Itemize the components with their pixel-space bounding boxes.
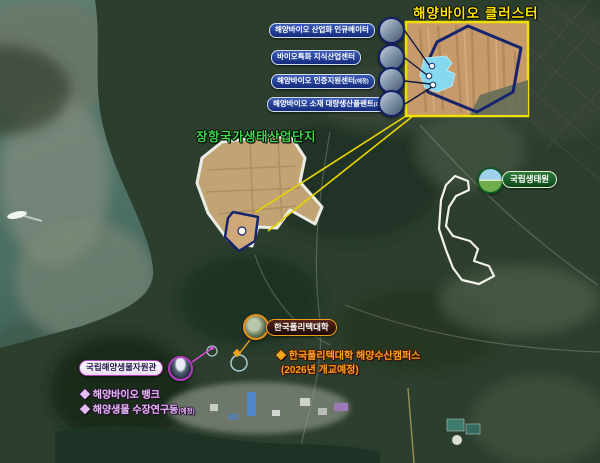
facility-label: 해양바이오 인증지원센터 [277, 76, 355, 85]
facility-pill-gmp-plant: 해양바이오 소재 대량생산플랜트(GMP) [267, 97, 396, 112]
satellite-map: 해양바이오 클러스터 해양바이오 산업화 인큐베이터 바이오특화 지식산업센터 … [0, 0, 600, 463]
facility-pill-knowledge-center: 바이오특화 지식산업센터 [271, 50, 361, 65]
mabik-photo-icon [168, 356, 193, 381]
facility-pill-incubator: 해양바이오 산업화 인큐베이터 [269, 23, 375, 38]
campus-line1: ◆ 한국폴리텍대학 해양수산캠퍼스 [276, 347, 420, 362]
cluster-title: 해양바이오 클러스터 [413, 2, 539, 22]
mabik-bullet-biobank: ◆ 해양바이오 뱅크 [80, 386, 160, 401]
cluster-inset [406, 22, 528, 116]
ecology-pill: 국립생태원 [502, 171, 557, 188]
gmp-plant-photo-icon [378, 90, 405, 117]
cluster-site-dot [238, 227, 246, 235]
facility-label: 해양바이오 산업화 인큐베이터 [275, 25, 369, 34]
janghang-complex-label: 장항국가생태산업단지 [196, 126, 316, 145]
facility-label: 해양바이오 소재 대량생산플랜트 [273, 99, 374, 108]
facility-suffix: (예정) [355, 79, 369, 85]
mabik-bullet-depository: ◆ 해양생물 수장연구동(예정) [80, 401, 195, 416]
facility-label: 바이오특화 지식산업센터 [277, 52, 355, 61]
mabik-pill: 국립해양생물자원관 [79, 360, 163, 376]
incubator-photo-icon [378, 17, 405, 44]
ecology-photo-icon [477, 167, 504, 194]
campus-line2: (2026년 개교예정) [281, 361, 359, 376]
facility-pill-certification-center: 해양바이오 인증지원센터(예정) [271, 74, 375, 89]
planned-suffix: (예정) [178, 408, 194, 415]
polytech-pill: 한국폴리텍대학 [266, 319, 337, 336]
